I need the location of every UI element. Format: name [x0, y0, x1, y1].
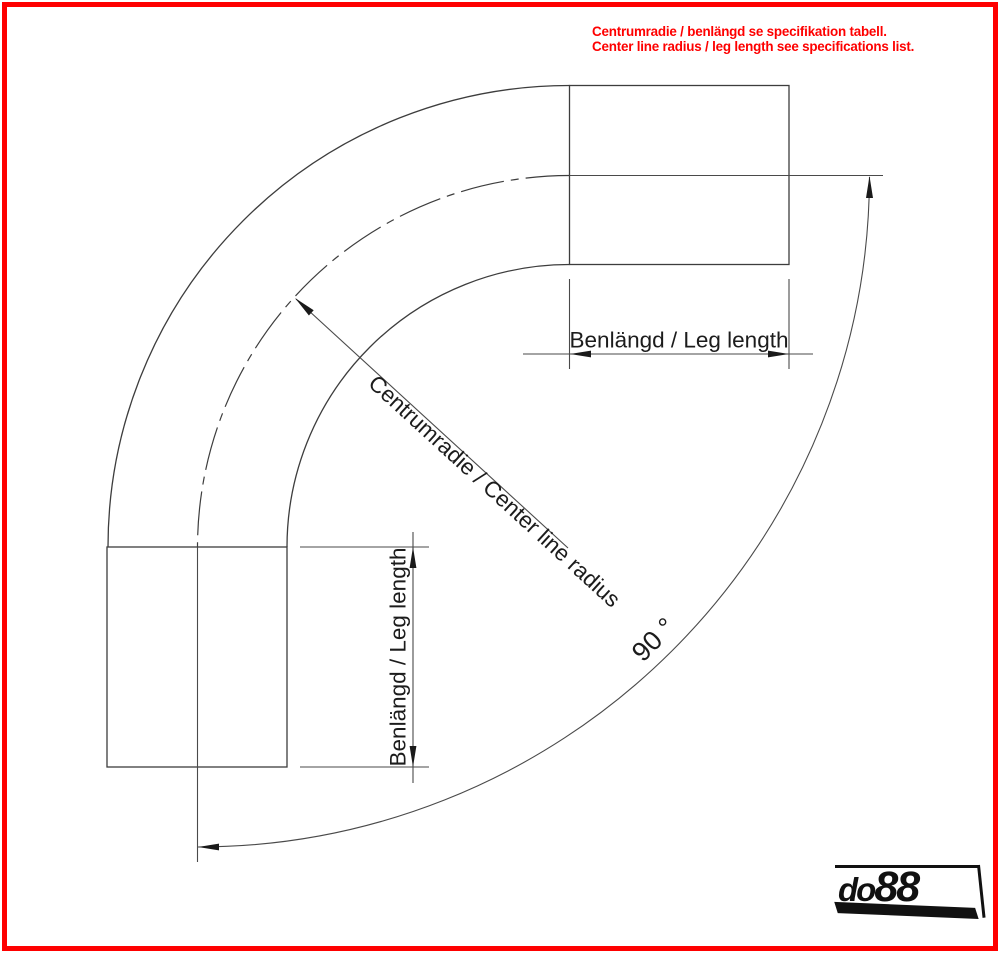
angle-label: 90 ° [626, 612, 681, 667]
do88-logo: do 88 [833, 860, 985, 922]
arrowhead-radius-icon [295, 298, 314, 316]
arrowhead-arc-top-icon [866, 176, 873, 198]
arrowhead-down-icon [410, 746, 417, 767]
arrowhead-arc-bottom-icon [198, 844, 219, 851]
logo-text: do 88 [838, 866, 918, 909]
logo-text-do: do [838, 873, 874, 906]
arrowhead-up-icon [410, 547, 417, 568]
logo-text-88: 88 [874, 866, 918, 909]
drawing-canvas: Centrumradie / benlängd se specifikation… [0, 0, 1000, 953]
bend-drawing: Benlängd / Leg length Benlängd / Leg len… [0, 0, 1000, 953]
leg-length-label-left: Benlängd / Leg length [386, 548, 411, 767]
logo-frame-right [977, 865, 986, 918]
outer-wall-arc [108, 86, 570, 548]
leg-length-label-top: Benlängd / Leg length [570, 328, 789, 353]
